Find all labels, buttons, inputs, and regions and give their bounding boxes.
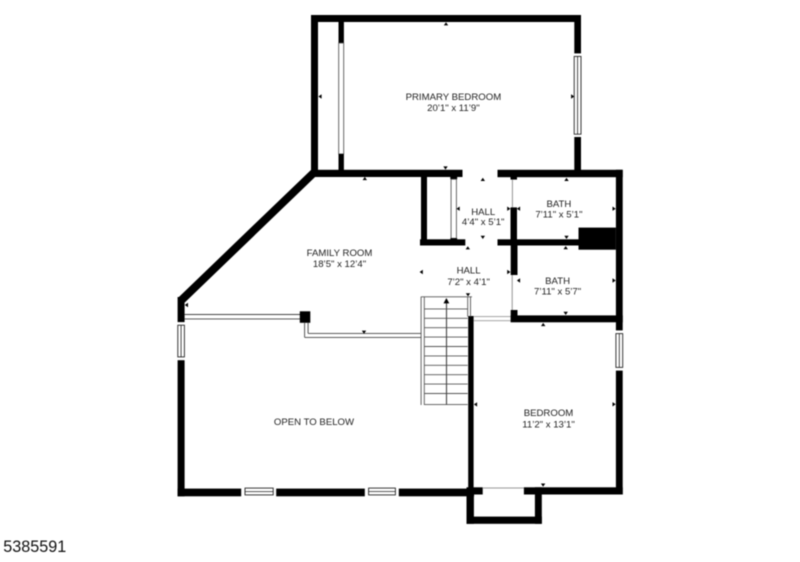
svg-text:PRIMARY BEDROOM: PRIMARY BEDROOM	[406, 92, 502, 103]
svg-text:20’1" x 11’9": 20’1" x 11’9"	[427, 103, 480, 114]
svg-text:7’11" x 5’7": 7’11" x 5’7"	[534, 287, 581, 298]
svg-text:5385591: 5385591	[3, 538, 66, 556]
svg-text:BEDROOM: BEDROOM	[524, 408, 574, 419]
svg-text:7’2" x 4’1": 7’2" x 4’1"	[447, 277, 490, 288]
svg-text:18’5" x 12’4": 18’5" x 12’4"	[313, 259, 366, 270]
svg-text:BATH: BATH	[546, 199, 571, 210]
svg-text:OPEN TO BELOW: OPEN TO BELOW	[274, 417, 355, 428]
svg-text:HALL: HALL	[457, 266, 482, 277]
svg-text:BATH: BATH	[545, 276, 570, 287]
svg-text:4’4" x 5’1": 4’4" x 5’1"	[462, 217, 505, 228]
svg-text:FAMILY ROOM: FAMILY ROOM	[307, 248, 373, 259]
svg-text:7’11" x 5’1": 7’11" x 5’1"	[535, 210, 582, 221]
svg-text:HALL: HALL	[471, 207, 496, 218]
svg-text:11’2" x 13’1": 11’2" x 13’1"	[522, 419, 575, 430]
